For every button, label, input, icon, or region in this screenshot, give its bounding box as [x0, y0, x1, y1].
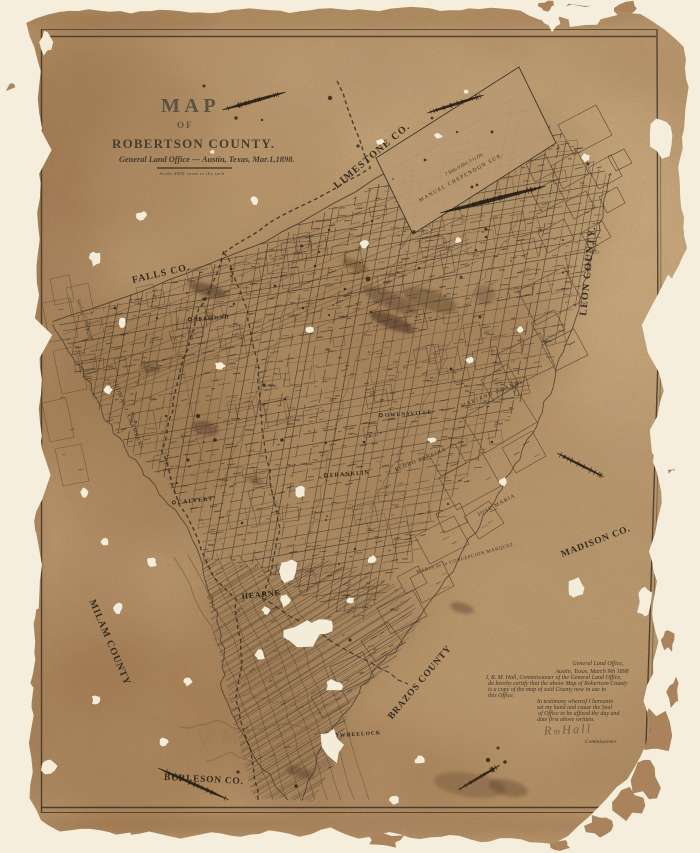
svg-text:Commissioner: Commissioner	[585, 739, 618, 745]
svg-text:Scale 4000 varas to the inch: Scale 4000 varas to the inch	[160, 171, 225, 176]
svg-text:I, R. M. Hall, Commissioner of: I, R. M. Hall, Commissioner of the Gener…	[485, 674, 622, 681]
svg-text:In testimony whereof I hereunt: In testimony whereof I hereunto	[536, 698, 613, 705]
svg-text:do hereby certify that the abo: do hereby certify that the above Map of …	[488, 680, 628, 687]
svg-text:RmHall: RmHall	[542, 721, 592, 738]
svg-text:General Land Office,: General Land Office,	[572, 660, 624, 667]
svg-text:of Office to be affixed the da: of Office to be affixed the day and	[538, 710, 620, 717]
svg-text:this Office.: this Office.	[488, 692, 514, 699]
svg-text:OF: OF	[177, 120, 194, 130]
svg-text:MAP: MAP	[161, 95, 220, 117]
svg-text:General Land Office — Austin,: General Land Office — Austin, Texas, Mar…	[119, 154, 295, 164]
svg-text:ROBERTSON COUNTY.: ROBERTSON COUNTY.	[112, 136, 275, 151]
svg-text:is a copy of the map of said C: is a copy of the map of said County now …	[488, 686, 606, 693]
